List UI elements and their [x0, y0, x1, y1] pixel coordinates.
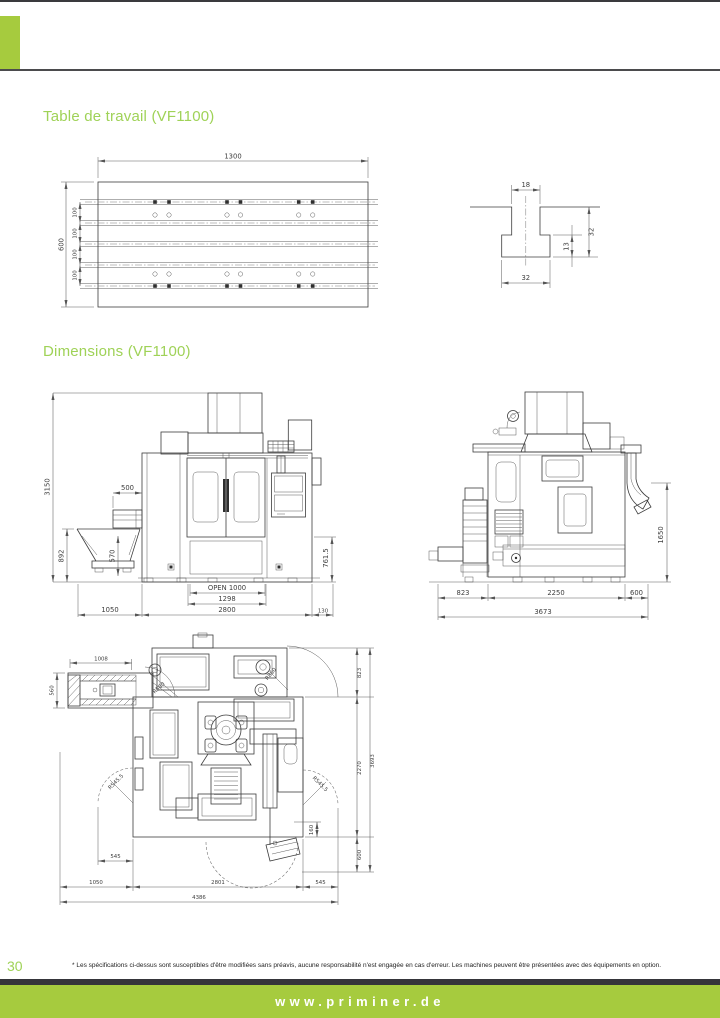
- dim-1050-top: 1050: [89, 880, 103, 886]
- side-view-drawing: 1650 823 2250 600 3673: [425, 386, 680, 628]
- dim-3150: 3150: [44, 478, 52, 495]
- dim-1298: 1298: [218, 595, 235, 603]
- dim-100-4: 100: [73, 270, 79, 281]
- tslot-dimensions: 18 32 32 13: [502, 181, 598, 288]
- label-r500: R500: [152, 681, 167, 695]
- dim-100-1: 100: [73, 207, 79, 218]
- dim-13: 13: [563, 242, 571, 251]
- section-title-table: Table de travail (VF1100): [43, 108, 214, 125]
- dim-130: 130: [318, 609, 329, 615]
- dim-560: 560: [50, 685, 56, 696]
- dim-3673: 3673: [534, 608, 551, 616]
- footer-bar: www.priminer.de: [0, 985, 720, 1018]
- front-dimensions: 3150 892 570 500 761.5 OPEN 1000 1298 28…: [44, 393, 337, 617]
- dim-600: 600: [58, 238, 66, 251]
- website-link[interactable]: www.priminer.de: [275, 994, 445, 1009]
- dim-100-3: 100: [73, 249, 79, 260]
- dim-32-depth: 32: [588, 228, 596, 237]
- dim-823: 823: [457, 589, 470, 597]
- table-dimensions: 1300 600 100 100 100 100: [58, 153, 369, 308]
- side-dimensions: 1650 823 2250 600 3673: [429, 483, 671, 620]
- label-r545-left: R545.5: [107, 773, 125, 791]
- top-rule: [0, 0, 720, 2]
- disclaimer-text: * Les spécifications ci-dessus sont susc…: [72, 962, 712, 969]
- dim-100-2: 100: [73, 228, 79, 239]
- dim-2801: 2801: [211, 880, 225, 886]
- dim-2250: 2250: [547, 589, 564, 597]
- tslot-profile: [470, 196, 600, 266]
- top-view-drawing: R850 R500 R545.5 R545.5 1008 560 823 227…: [48, 632, 393, 917]
- top-machine-outline: [68, 633, 303, 861]
- top-swing-arcs: R850 R500 R545.5 R545.5: [98, 646, 338, 888]
- dim-892: 892: [58, 550, 66, 563]
- dim-1050: 1050: [101, 606, 118, 614]
- dim-32-bottom: 32: [521, 274, 530, 282]
- dim-2800: 2800: [218, 606, 235, 614]
- section-title-dimensions: Dimensions (VF1100): [43, 343, 191, 360]
- dim-4386: 4386: [192, 895, 206, 901]
- dim-545-left: 545: [110, 854, 120, 860]
- side-machine-outline: [429, 392, 651, 582]
- header-accent-square: [0, 16, 20, 69]
- front-view-drawing: 3150 892 570 500 761.5 OPEN 1000 1298 28…: [40, 386, 340, 628]
- table-outline: [98, 182, 368, 307]
- dim-600-top: 600: [357, 849, 363, 860]
- dim-160: 160: [309, 824, 315, 835]
- dim-600: 600: [630, 589, 643, 597]
- page-number: 30: [7, 958, 23, 974]
- dim-570: 570: [109, 550, 117, 563]
- dim-3693: 3693: [370, 754, 376, 768]
- tslot-detail-drawing: 18 32 32 13: [458, 162, 618, 302]
- dim-545-right: 545: [315, 880, 325, 886]
- dim-761-5: 761.5: [322, 548, 330, 567]
- worktable-drawing: 1300 600 100 100 100 100: [35, 148, 380, 323]
- header-rule: [0, 69, 720, 71]
- dim-500: 500: [121, 484, 134, 492]
- dim-823-top: 823: [357, 668, 363, 678]
- label-r545-right: R545.5: [311, 775, 329, 793]
- dim-1650: 1650: [657, 526, 665, 543]
- dim-1008: 1008: [94, 657, 108, 663]
- dim-2270: 2270: [357, 761, 363, 775]
- dim-18: 18: [521, 181, 530, 189]
- dim-open-1000: OPEN 1000: [208, 584, 246, 592]
- dim-1300: 1300: [224, 153, 241, 161]
